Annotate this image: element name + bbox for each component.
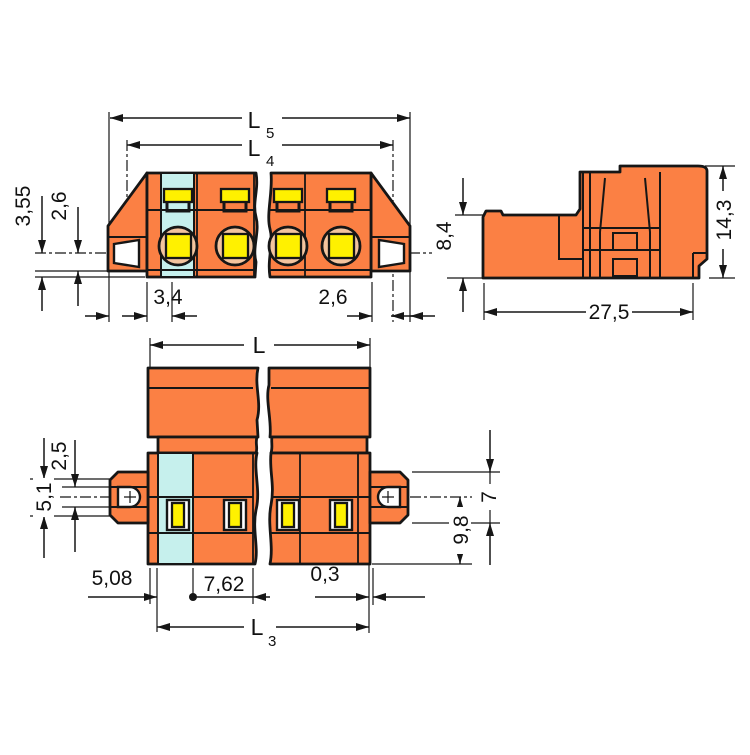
dim-label-l4-sub: 4 <box>266 153 274 170</box>
dim-label-2-6-left: 2,6 <box>48 191 71 220</box>
dim-label-3-55: 3,55 <box>12 186 35 227</box>
conductor-clamp <box>329 234 354 258</box>
pin <box>335 503 347 527</box>
collar-right <box>271 437 367 453</box>
dim-label-l5-sub: 5 <box>266 125 274 142</box>
dim-label-l3-sub: 3 <box>268 633 276 650</box>
front-view: L 5 L 4 3,55 2,6 3,4 2,6 <box>12 107 435 322</box>
mounting-flange-hole <box>379 240 404 267</box>
technical-drawing: L 5 L 4 3,55 2,6 3,4 2,6 <box>0 0 750 750</box>
dim-label-7-62: 7,62 <box>204 573 245 596</box>
dim-label-27-5: 27,5 <box>589 301 630 324</box>
clamp-screw <box>327 189 355 202</box>
conductor-clamp <box>166 234 191 258</box>
clamp-screw <box>221 189 249 202</box>
pin <box>229 503 241 527</box>
plan-body <box>110 368 408 564</box>
dim-label-7: 7 <box>478 491 501 503</box>
dim-label-l3: L <box>251 614 264 640</box>
dim-label-0-3: 0,3 <box>310 563 339 586</box>
dim-label-3-4: 3,4 <box>153 286 183 309</box>
plug-section-right <box>268 368 370 437</box>
conductor-clamp <box>276 234 301 258</box>
front-body <box>108 173 410 277</box>
dim-label-l4: L <box>248 135 261 161</box>
dim-label-14-3: 14,3 <box>713 200 736 241</box>
drawing-canvas: L 5 L 4 3,55 2,6 3,4 2,6 <box>0 0 750 750</box>
collar-left <box>158 437 257 453</box>
dim-label-l5: L <box>248 107 261 133</box>
clamp-screw <box>274 189 302 202</box>
plan-view: L 2,5 5,1 7 9,8 5,08 7,62 0,3 <box>30 332 501 650</box>
dim-label-8-4: 8,4 <box>433 221 456 251</box>
conductor-entries <box>159 227 360 265</box>
side-view: 8,4 14,3 27,5 <box>433 166 736 324</box>
pin <box>172 503 184 527</box>
dim-label-9-8: 9,8 <box>450 515 473 544</box>
pin <box>282 503 294 527</box>
dim-label-5-1: 5,1 <box>33 482 56 511</box>
side-profile <box>483 166 707 278</box>
conductor-clamp <box>223 234 248 258</box>
clamp-screw <box>164 189 192 202</box>
plan-dimensions: L 2,5 5,1 7 9,8 5,08 7,62 0,3 <box>33 332 501 650</box>
mounting-flange-hole <box>114 240 139 267</box>
plug-section-left <box>148 368 259 437</box>
dim-label-l: L <box>253 332 266 358</box>
dim-label-2-6-bottom: 2,6 <box>318 286 347 309</box>
dim-label-5-08: 5,08 <box>92 567 133 590</box>
dim-label-2-5: 2,5 <box>48 441 71 470</box>
